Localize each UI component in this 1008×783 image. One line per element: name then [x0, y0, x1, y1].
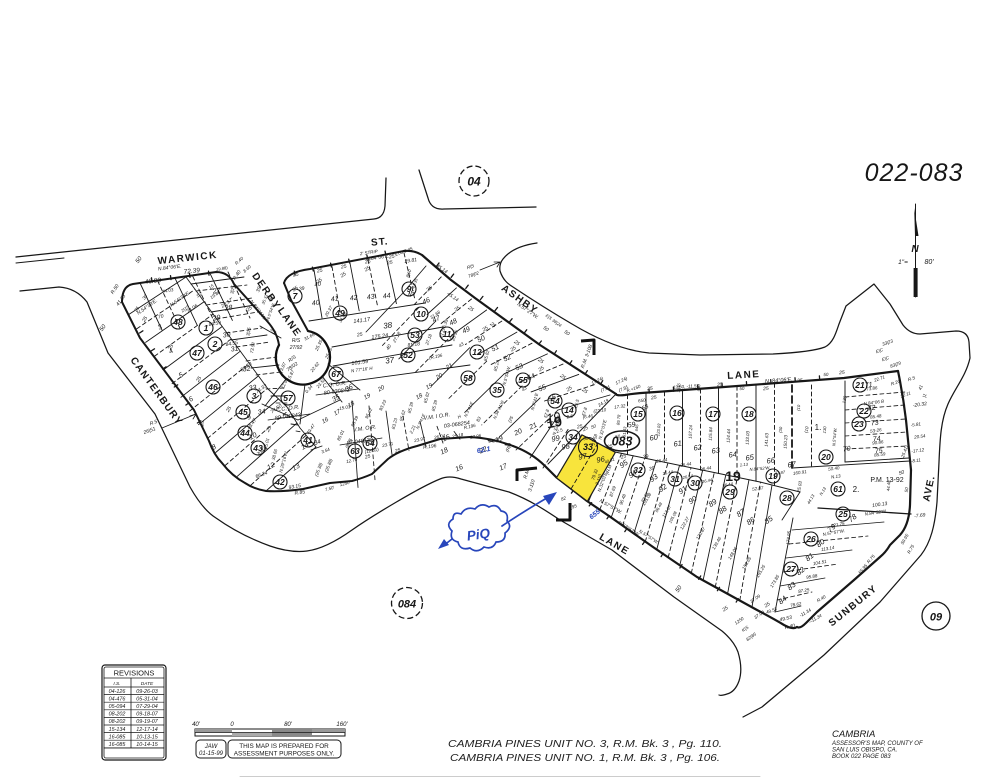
- svg-text:1"=: 1"=: [898, 259, 908, 266]
- svg-text:10: 10: [416, 309, 426, 319]
- svg-text:150.23: 150.23: [783, 434, 789, 449]
- svg-text:67: 67: [331, 369, 342, 379]
- svg-text:CAMBRIA: CAMBRIA: [832, 729, 875, 740]
- svg-text:08-202: 08-202: [109, 719, 126, 725]
- svg-text:25: 25: [364, 259, 372, 266]
- svg-text:09-19-07: 09-19-07: [136, 719, 159, 725]
- svg-text:115.84: 115.84: [708, 427, 714, 441]
- svg-text:09-18-07: 09-18-07: [136, 712, 159, 718]
- svg-text:650: 650: [696, 384, 702, 392]
- svg-text:50: 50: [823, 372, 829, 377]
- svg-text:107.24: 107.24: [688, 424, 694, 439]
- svg-text:25: 25: [796, 378, 803, 384]
- svg-text:CAMBRIA PINES UNIT NO. 3, R.M.: CAMBRIA PINES UNIT NO. 3, R.M. Bk. 3 , P…: [448, 738, 722, 750]
- svg-text:BOOK 022 PAGE 083: BOOK 022 PAGE 083: [832, 754, 891, 760]
- svg-text:50: 50: [739, 386, 745, 391]
- svg-text:73: 73: [870, 419, 879, 427]
- svg-text:42: 42: [274, 477, 285, 487]
- svg-text:08-202: 08-202: [109, 712, 126, 718]
- svg-text:21: 21: [854, 380, 865, 390]
- svg-text:37: 37: [385, 355, 396, 365]
- svg-text:28: 28: [781, 493, 792, 503]
- svg-text:12: 12: [472, 347, 482, 357]
- svg-text:70: 70: [842, 445, 851, 453]
- svg-text:01-15-99: 01-15-99: [199, 751, 224, 757]
- svg-text:130: 130: [822, 426, 828, 434]
- svg-text:25: 25: [340, 264, 348, 271]
- svg-text:1.: 1.: [815, 423, 822, 432]
- svg-text:25: 25: [646, 386, 653, 392]
- svg-text:30: 30: [690, 478, 700, 488]
- svg-text:10-13-15: 10-13-15: [136, 734, 159, 740]
- svg-text:16-085: 16-085: [109, 742, 127, 748]
- svg-text:2: 2: [212, 339, 218, 349]
- svg-text:CAMBRIA PINES UNIT NO. 1, R.M.: CAMBRIA PINES UNIT NO. 1, R.M. Bk. 3 , P…: [450, 752, 720, 764]
- svg-text:91.43: 91.43: [622, 426, 628, 438]
- svg-text:05-094: 05-094: [109, 704, 126, 710]
- svg-text:04-476: 04-476: [109, 696, 126, 702]
- svg-text:61: 61: [673, 438, 683, 448]
- svg-text:09-26-03: 09-26-03: [136, 689, 158, 695]
- svg-text:LANE: LANE: [727, 369, 761, 382]
- svg-text:646: 646: [634, 424, 640, 432]
- svg-text:SAN LUIS OBISPO, CA.: SAN LUIS OBISPO, CA.: [832, 748, 897, 754]
- svg-text:57: 57: [283, 393, 294, 403]
- svg-text:2.: 2.: [853, 485, 860, 494]
- svg-text:50: 50: [904, 487, 909, 493]
- svg-text:JAW: JAW: [204, 744, 219, 750]
- svg-text:31: 31: [670, 474, 680, 484]
- svg-text:17: 17: [708, 409, 719, 419]
- svg-text:64: 64: [728, 449, 738, 459]
- svg-text:25: 25: [716, 382, 723, 388]
- svg-text:084: 084: [398, 599, 416, 611]
- svg-text:(30: (30: [778, 426, 784, 433]
- svg-text:DATE: DATE: [141, 681, 154, 687]
- svg-text:47: 47: [191, 348, 203, 358]
- svg-text:160': 160': [336, 722, 348, 728]
- svg-text:N: N: [911, 244, 919, 255]
- svg-text:41: 41: [330, 295, 339, 303]
- svg-text:1646: 1646: [676, 382, 682, 392]
- svg-text:63: 63: [350, 446, 360, 456]
- svg-text:25: 25: [292, 272, 300, 279]
- svg-text:44: 44: [382, 292, 391, 300]
- svg-text:07-29-04: 07-29-04: [136, 704, 158, 710]
- svg-text:022-083: 022-083: [865, 159, 964, 187]
- svg-text:25: 25: [388, 254, 396, 261]
- svg-text:25: 25: [838, 370, 845, 376]
- svg-text:29: 29: [724, 487, 735, 497]
- svg-text:34: 34: [568, 432, 578, 442]
- svg-text:34: 34: [257, 408, 266, 416]
- svg-text:25: 25: [316, 268, 324, 275]
- svg-text:ASSESSOR'S MAP, COUNTY OF: ASSESSOR'S MAP, COUNTY OF: [831, 741, 923, 747]
- svg-text:I.S.: I.S.: [113, 681, 120, 687]
- svg-text:05-31-04: 05-31-04: [136, 696, 158, 702]
- svg-text:35: 35: [492, 385, 502, 395]
- svg-text:40': 40': [192, 722, 201, 728]
- svg-text:15-134: 15-134: [109, 727, 126, 733]
- svg-text:25: 25: [386, 260, 394, 267]
- svg-text:27/92: 27/92: [289, 345, 303, 351]
- svg-text:25: 25: [650, 395, 658, 402]
- svg-text:16-085: 16-085: [109, 734, 127, 740]
- svg-text:18: 18: [744, 409, 754, 419]
- svg-text:16: 16: [672, 408, 682, 418]
- svg-text:44.40: 44.40: [886, 480, 892, 492]
- svg-text:43: 43: [366, 293, 375, 301]
- svg-text:ASSESSMENT PURPOSES ONLY.: ASSESSMENT PURPOSES ONLY.: [234, 751, 335, 758]
- svg-text:09: 09: [930, 612, 943, 624]
- svg-text:48: 48: [172, 317, 183, 327]
- svg-text:61: 61: [833, 484, 843, 494]
- svg-text:53: 53: [410, 330, 420, 340]
- svg-text:46: 46: [207, 382, 218, 392]
- svg-text:12-17-14: 12-17-14: [136, 727, 158, 733]
- svg-text:58: 58: [463, 373, 473, 383]
- svg-text:10-14-15: 10-14-15: [136, 742, 159, 748]
- svg-text:25: 25: [356, 332, 364, 339]
- svg-text:(10: (10: [796, 404, 802, 411]
- svg-text:42: 42: [349, 294, 358, 302]
- svg-text:R/S: R/S: [292, 338, 301, 344]
- svg-text:25: 25: [606, 444, 614, 451]
- svg-text:124.44: 124.44: [726, 428, 732, 443]
- svg-text:30: 30: [222, 331, 231, 339]
- svg-text:80': 80': [924, 259, 934, 266]
- svg-text:1.13: 1.13: [740, 462, 749, 468]
- svg-text:REVISIONS: REVISIONS: [114, 669, 155, 678]
- svg-text:40: 40: [311, 299, 320, 307]
- svg-text:04-126: 04-126: [109, 689, 126, 695]
- svg-text:89.78: 89.78: [616, 414, 622, 426]
- svg-text:15: 15: [633, 409, 643, 419]
- svg-text:133.03: 133.03: [745, 430, 751, 445]
- svg-text:THIS MAP IS PREPARED FOR: THIS MAP IS PREPARED FOR: [239, 743, 329, 750]
- svg-text:32.87: 32.87: [774, 470, 786, 476]
- svg-text:23: 23: [853, 419, 864, 429]
- svg-text:141.63: 141.63: [764, 432, 770, 447]
- svg-text:25: 25: [762, 386, 769, 392]
- svg-text:80': 80': [284, 722, 293, 728]
- svg-text:20: 20: [820, 452, 831, 462]
- svg-text:38: 38: [383, 320, 394, 330]
- svg-text:ST.: ST.: [371, 236, 389, 248]
- svg-text:04: 04: [467, 175, 481, 189]
